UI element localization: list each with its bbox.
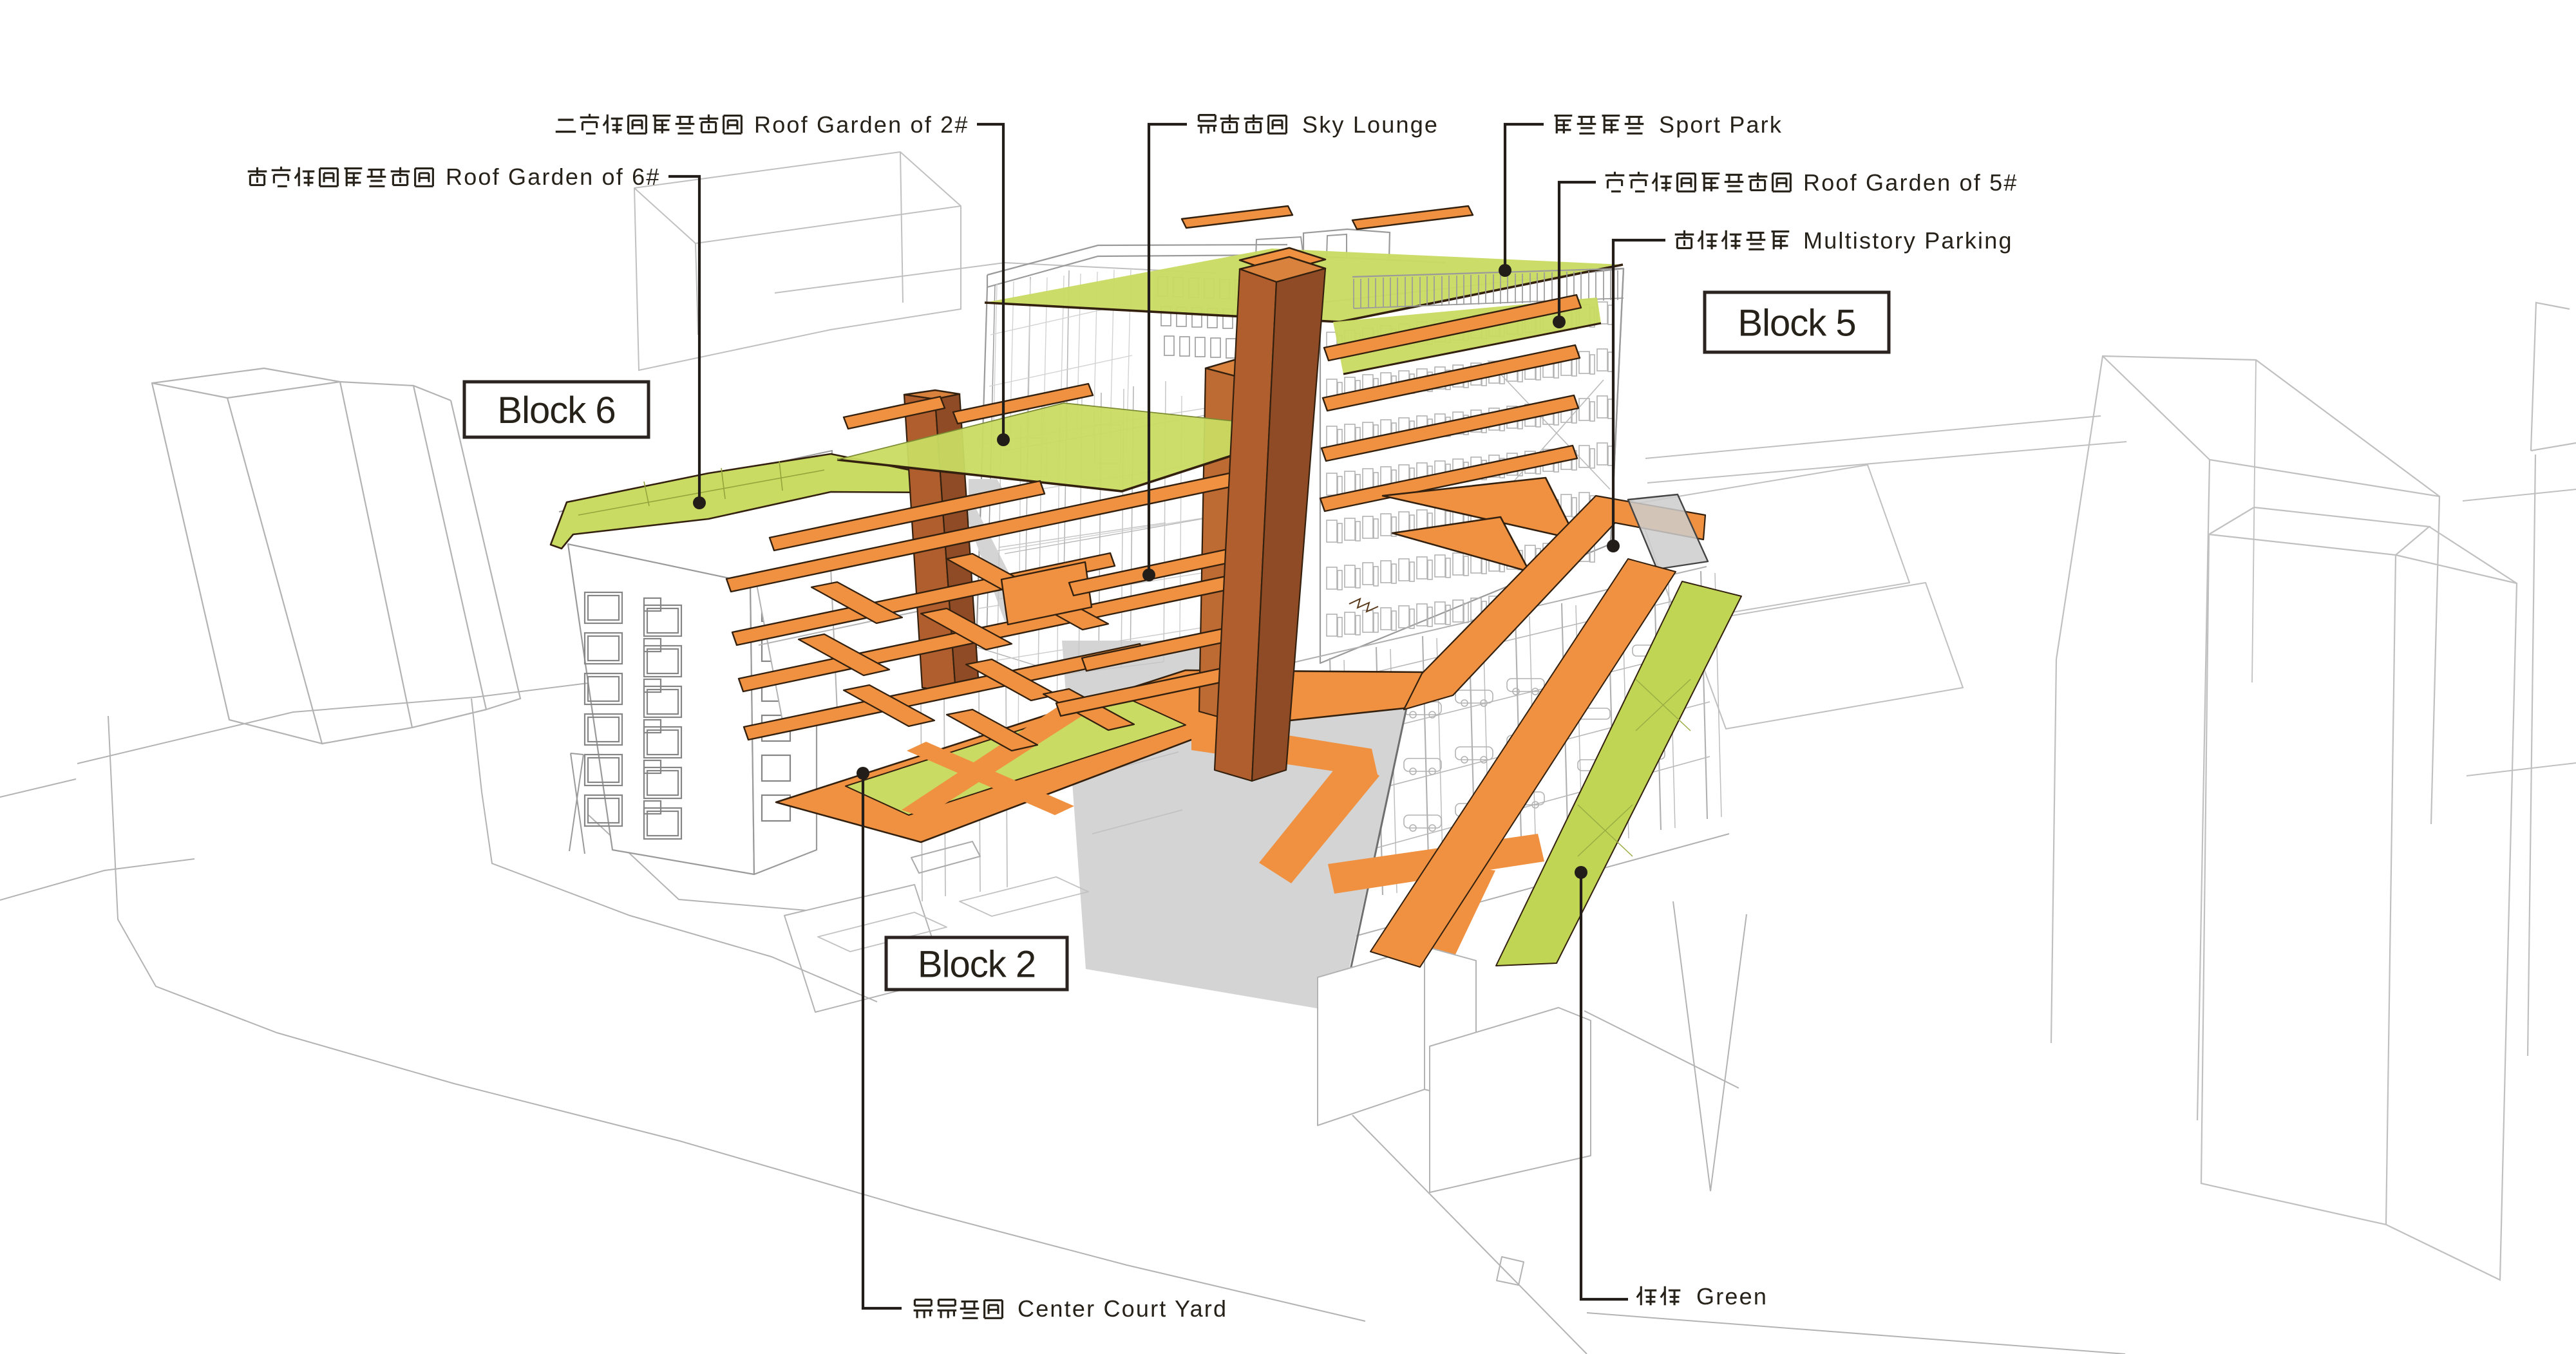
svg-text:Sport Park: Sport Park xyxy=(1659,111,1783,138)
svg-text:Multistory Parking: Multistory Parking xyxy=(1803,227,2013,254)
svg-text:Block 5: Block 5 xyxy=(1738,303,1855,344)
svg-text:Center Court Yard: Center Court Yard xyxy=(1018,1295,1227,1322)
svg-text:Green: Green xyxy=(1696,1283,1768,1310)
svg-text:Roof Garden of 5#: Roof Garden of 5# xyxy=(1803,169,2018,196)
svg-text:Roof Garden of 2#: Roof Garden of 2# xyxy=(754,111,969,138)
svg-text:Block 2: Block 2 xyxy=(918,944,1036,986)
svg-text:Block 6: Block 6 xyxy=(497,390,615,431)
svg-text:Roof Garden of 6#: Roof Garden of 6# xyxy=(446,164,661,190)
svg-text:Sky Lounge: Sky Lounge xyxy=(1302,111,1439,138)
